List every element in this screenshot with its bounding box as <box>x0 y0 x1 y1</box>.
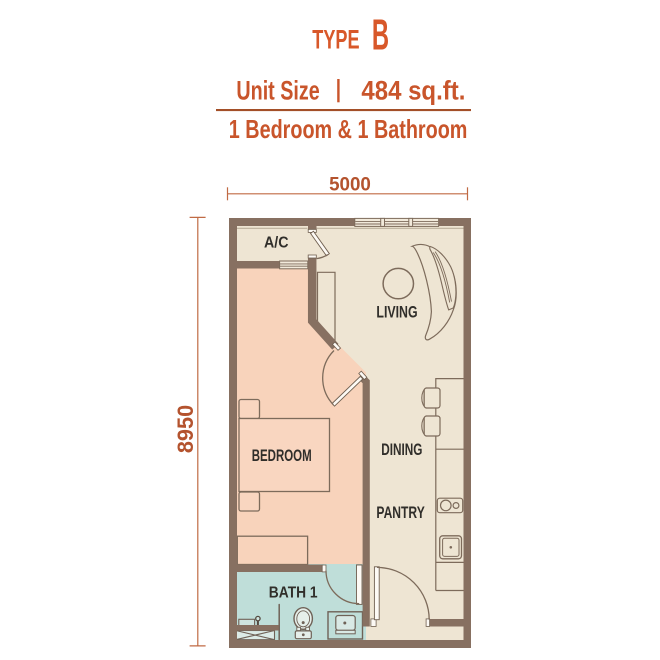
svg-text:PANTRY: PANTRY <box>376 503 424 522</box>
svg-text:8950: 8950 <box>173 405 198 453</box>
svg-text:484 sq.ft.: 484 sq.ft. <box>361 76 465 106</box>
svg-text:LIVING: LIVING <box>376 303 417 322</box>
svg-text:1 Bedroom & 1 Bathroom: 1 Bedroom & 1 Bathroom <box>229 114 468 144</box>
svg-text:BATH 1: BATH 1 <box>269 585 318 602</box>
svg-text:Unit Size: Unit Size <box>236 76 319 106</box>
svg-text:DINING: DINING <box>381 440 422 459</box>
svg-text:TYPE: TYPE <box>312 25 359 55</box>
svg-text:A/C: A/C <box>264 234 289 251</box>
svg-text:B: B <box>372 11 389 59</box>
svg-text:BEDROOM: BEDROOM <box>252 447 312 465</box>
svg-text:5000: 5000 <box>329 174 371 195</box>
